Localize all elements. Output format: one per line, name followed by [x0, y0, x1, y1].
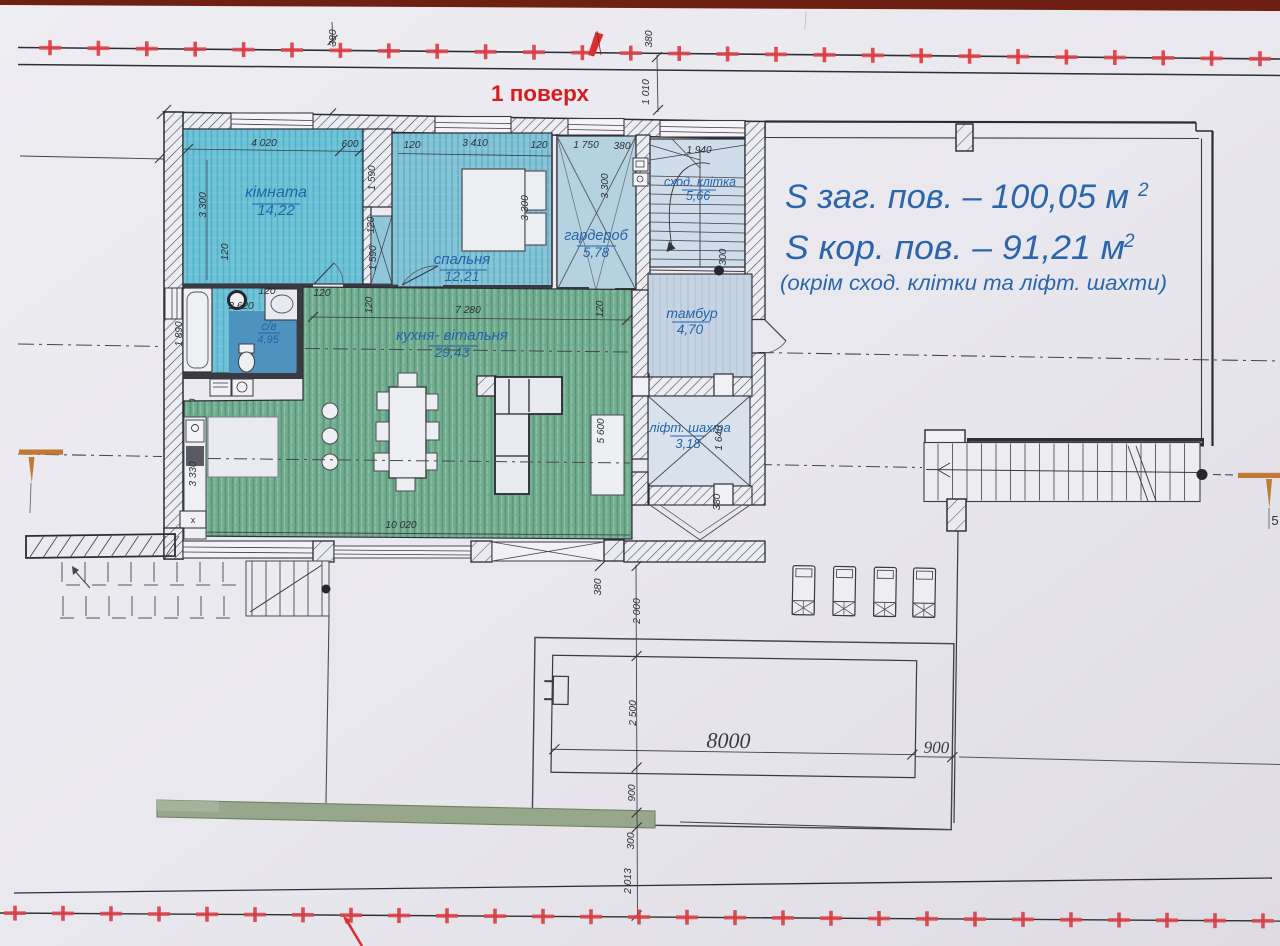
svg-text:1 940: 1 940 — [686, 145, 711, 156]
svg-text:5 600: 5 600 — [596, 418, 607, 443]
svg-text:1 010: 1 010 — [641, 79, 652, 105]
svg-text:900: 900 — [627, 784, 638, 801]
svg-text:3 410: 3 410 — [462, 138, 488, 149]
svg-text:сход. клітка: сход. клітка — [664, 175, 736, 189]
svg-text:14,22: 14,22 — [257, 202, 295, 219]
svg-text:тамбур: тамбур — [666, 305, 717, 321]
svg-text:120: 120 — [259, 286, 276, 297]
svg-text:1 640: 1 640 — [714, 425, 725, 450]
svg-text:2 000: 2 000 — [632, 598, 643, 625]
svg-text:4 020: 4 020 — [251, 138, 277, 149]
svg-text:3 300: 3 300 — [520, 195, 531, 221]
svg-text:кімната: кімната — [245, 184, 307, 201]
svg-text:кухня- вітальня: кухня- вітальня — [396, 327, 508, 344]
svg-text:2: 2 — [1137, 180, 1149, 201]
svg-text:10 020: 10 020 — [385, 520, 416, 531]
svg-text:120: 120 — [364, 296, 375, 313]
svg-text:120: 120 — [314, 288, 331, 299]
svg-text:(окрім сход. клітки та ліфт. ш: (окрім сход. клітки та ліфт. шахти) — [780, 272, 1167, 295]
svg-text:1 890: 1 890 — [174, 321, 185, 346]
svg-text:300: 300 — [718, 248, 729, 265]
svg-text:900: 900 — [924, 738, 950, 757]
svg-text:380: 380 — [712, 493, 723, 510]
svg-text:3 330: 3 330 — [188, 461, 199, 486]
svg-text:S заг. пов. – 100,05 м: S заг. пов. – 100,05 м — [785, 178, 1129, 216]
svg-text:2 500: 2 500 — [628, 700, 639, 727]
svg-text:380: 380 — [328, 29, 339, 46]
svg-text:S кор. пов. – 91,21 м: S кор. пов. – 91,21 м — [785, 229, 1125, 267]
svg-text:120: 120 — [531, 140, 548, 151]
svg-text:4,95: 4,95 — [257, 334, 279, 346]
svg-text:120: 120 — [595, 300, 606, 317]
svg-text:x: x — [191, 515, 196, 525]
svg-text:1 590: 1 590 — [367, 165, 378, 190]
svg-text:спальня: спальня — [434, 251, 491, 268]
svg-text:1 750: 1 750 — [573, 140, 599, 151]
svg-text:380: 380 — [614, 141, 631, 152]
svg-text:с/в: с/в — [262, 321, 277, 333]
svg-text:1 поверх: 1 поверх — [491, 81, 590, 106]
svg-text:2 013: 2 013 — [623, 868, 634, 895]
svg-text:120: 120 — [404, 140, 421, 151]
svg-text:120: 120 — [220, 243, 231, 260]
svg-text:380: 380 — [593, 578, 604, 595]
svg-text:7 280: 7 280 — [455, 305, 481, 316]
svg-text:5,78: 5,78 — [583, 245, 610, 260]
svg-text:1 590: 1 590 — [368, 245, 379, 270]
svg-text:380: 380 — [644, 30, 655, 47]
svg-text:2: 2 — [1123, 231, 1135, 252]
svg-text:600: 600 — [342, 139, 359, 150]
svg-text:8000: 8000 — [706, 728, 750, 754]
svg-text:300: 300 — [626, 832, 637, 849]
svg-text:3 300: 3 300 — [198, 192, 209, 218]
svg-text:гардероб: гардероб — [564, 228, 628, 244]
svg-text:4,70: 4,70 — [677, 322, 704, 337]
svg-text:3,18: 3,18 — [675, 436, 701, 451]
svg-text:5,66: 5,66 — [686, 189, 710, 203]
svg-text:2 620: 2 620 — [227, 301, 253, 312]
svg-text:120: 120 — [366, 216, 377, 233]
svg-text:3 300: 3 300 — [600, 173, 611, 198]
svg-text:5: 5 — [1271, 513, 1278, 528]
